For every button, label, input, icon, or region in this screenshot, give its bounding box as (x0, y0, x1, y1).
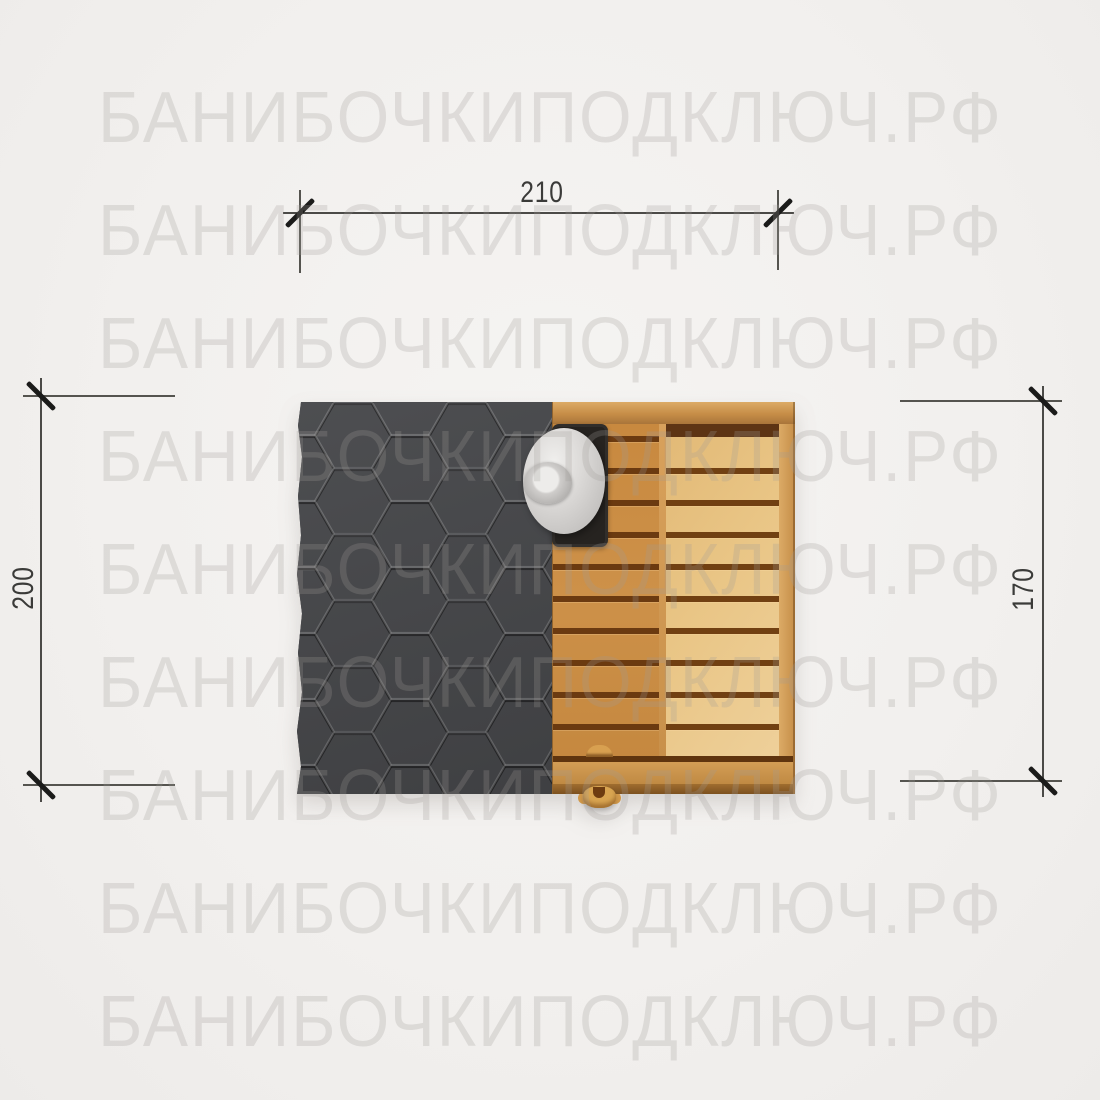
slat-gap (666, 596, 779, 602)
dimension-value-inner-depth: 170 (1009, 567, 1039, 611)
slat-gap (553, 564, 659, 570)
extension-line (777, 190, 779, 270)
chimney-pipe-icon (524, 462, 572, 504)
dimension-line (40, 378, 42, 802)
slat-gap (553, 692, 659, 698)
deck-top-rail (553, 402, 795, 424)
roof-shading-overlay (296, 402, 552, 794)
door-handle-knob (583, 786, 616, 808)
slat-gap (666, 692, 779, 698)
dimension-line (1042, 386, 1044, 797)
extension-line (299, 190, 301, 273)
watermark-text: БАНИБОЧКИПОДКЛЮЧ.РФ (33, 986, 1067, 1058)
slat-gap (553, 724, 659, 730)
slat-gap (666, 628, 779, 634)
dimension-line (283, 212, 794, 214)
sauna-building-top-view (296, 402, 794, 794)
slat-gap (553, 628, 659, 634)
wood-deck-area (552, 402, 795, 794)
watermark-text: БАНИБОЧКИПОДКЛЮЧ.РФ (33, 873, 1067, 945)
deck-right-edge-shadow (793, 402, 795, 794)
slat-gap (553, 596, 659, 602)
dimension-value-width: 210 (520, 178, 564, 208)
plan-drawing-canvas: 210 200 170 БАНИБОЧКИПОДКЛЮЧ.РФБАНИБОЧКИ… (0, 0, 1100, 1100)
slat-gap (666, 500, 779, 506)
deck-bottom-rail (553, 762, 793, 784)
deck-right-rail (779, 424, 793, 776)
slat-gap (553, 660, 659, 666)
slat-gap (666, 532, 779, 538)
slat-gap (666, 564, 779, 570)
deck-dark-top-board (666, 424, 779, 437)
dimension-value-depth: 200 (9, 566, 39, 610)
deck-center-rail (659, 424, 666, 762)
deck-right-slat-column (666, 424, 779, 762)
slat-gap (666, 468, 779, 474)
roof-shingles-area (296, 402, 552, 794)
watermark-text: БАНИБОЧКИПОДКЛЮЧ.РФ (33, 82, 1067, 154)
slat-gap (666, 660, 779, 666)
watermark-text: БАНИБОЧКИПОДКЛЮЧ.РФ (33, 308, 1067, 380)
slat-gap (666, 724, 779, 730)
